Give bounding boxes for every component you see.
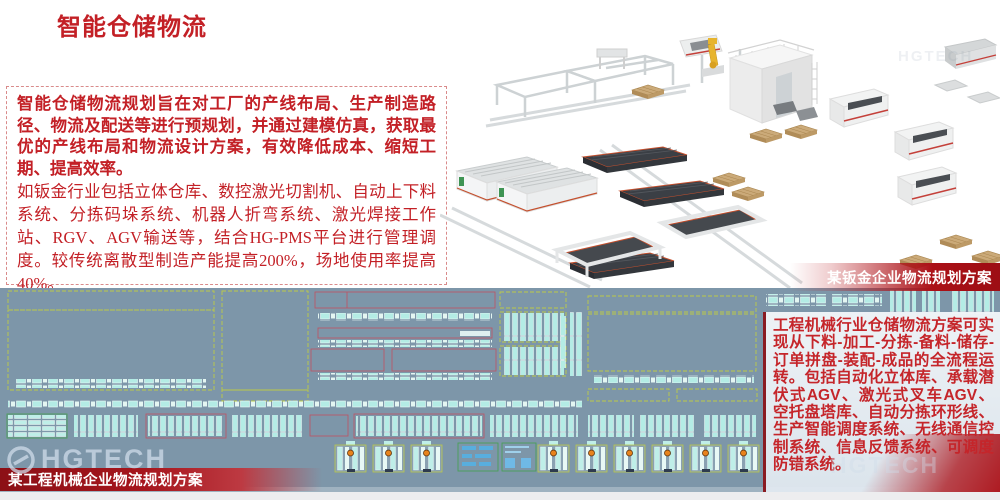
banner-machinery-plan: 某工程机械企业物流规划方案 — [0, 468, 322, 491]
gantry-frames — [497, 49, 740, 117]
leveler-machine — [935, 39, 1000, 103]
banner-machinery-label: 某工程机械企业物流规划方案 — [8, 469, 203, 490]
slide: 智能仓储物流 智能仓储物流规划旨在对工厂的产线布局、生产制造路径、物流及配送等进… — [0, 0, 1000, 500]
machinery-plan-panel: 工程机械行业仓储物流方案可实现从下料-加工-分拣-备料-储存-订单拼盘-装配-成… — [763, 312, 1000, 492]
intro-paragraph-2: 如钣金行业包括立体仓库、数控激光切割机、自动上下料系统、分拣码垛系统、机器人折弯… — [17, 180, 436, 295]
bottom-margin — [0, 492, 1000, 500]
press-brake-machines — [830, 89, 956, 205]
machinery-plan-text: 工程机械行业仓储物流方案可实现从下料-加工-分拣-备料-储存-订单拼盘-装配-成… — [773, 317, 994, 474]
banner-sheet-metal-label: 某钣金企业物流规划方案 — [827, 267, 992, 288]
machining-rows — [318, 373, 492, 380]
intro-paragraph-1: 智能仓储物流规划旨在对工厂的产线布局、生产制造路径、物流及配送等进行预规划，并通… — [17, 94, 436, 180]
rack-columns-mid — [560, 312, 584, 376]
zone-la4 — [500, 346, 566, 376]
zone-la5 — [500, 312, 566, 342]
banner-sheet-metal-plan: 某钣金企业物流规划方案 — [790, 263, 1000, 291]
factory-3d-render — [440, 25, 1000, 290]
page-title: 智能仓储物流 — [57, 7, 207, 42]
machine-cells-row — [335, 441, 759, 472]
intro-textbox: 智能仓储物流规划旨在对工厂的产线布局、生产制造路径、物流及配送等进行预规划，并通… — [6, 86, 447, 285]
conveyor-row-long — [8, 400, 582, 408]
rack-rows — [7, 414, 756, 438]
